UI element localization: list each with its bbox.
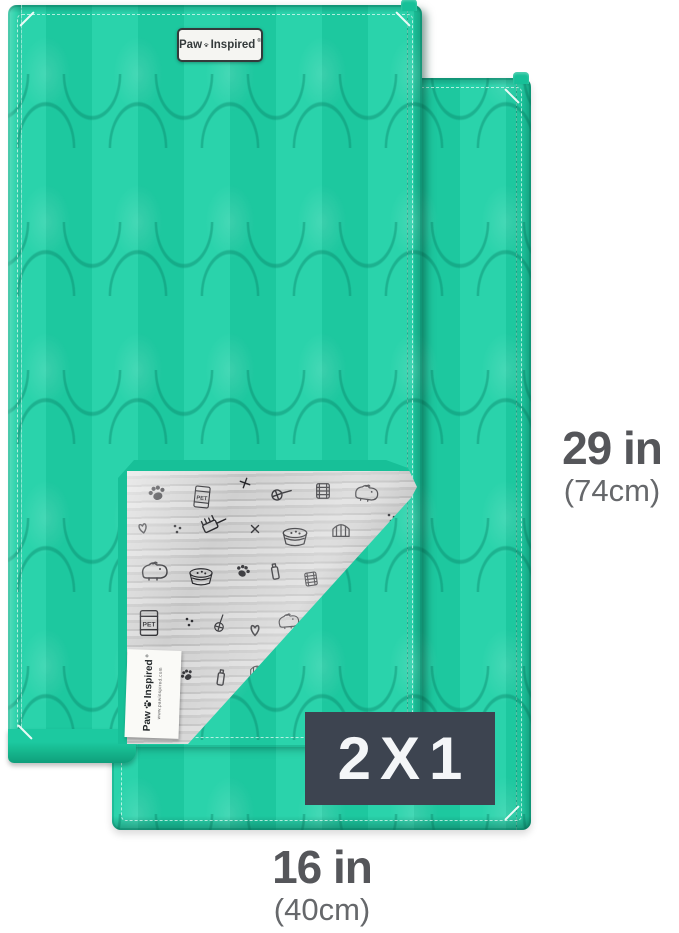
front-pad-top-binding (8, 5, 422, 13)
back-pad-side-gusset (516, 78, 531, 830)
brand-word-inspired: Inspired (211, 39, 256, 51)
height-metric: (74cm) (545, 474, 679, 507)
care-label-tag: Paw Inspired ® www.pawinspired.com (124, 649, 181, 739)
care-label-brand: Paw Inspired ® (141, 654, 155, 731)
care-label-url: www.pawinspired.com (156, 667, 163, 719)
registered-mark: ® (257, 38, 261, 44)
brand-word-paw: Paw (179, 39, 202, 51)
width-inches: 16 in (222, 843, 422, 893)
front-pad-side-gusset (8, 5, 22, 747)
back-pad-bottom-binding (112, 816, 531, 830)
paw-print-icon (143, 700, 151, 709)
height-inches: 29 in (545, 424, 679, 474)
paw-print-icon (204, 40, 209, 50)
width-metric: (40cm) (222, 893, 422, 926)
product-image: Paw Inspired ® (0, 0, 679, 933)
front-pad-seam-tab (401, 0, 417, 11)
height-dimension: 29 in (74cm) (545, 424, 679, 507)
width-dimension: 16 in (40cm) (222, 843, 422, 926)
back-pad-seam-tab (513, 72, 529, 84)
promo-badge-label: 2X1 (338, 724, 472, 793)
promo-badge: 2X1 (305, 712, 495, 805)
brand-logo-plate: Paw Inspired ® (177, 28, 263, 62)
front-pad-side-gusset (407, 5, 422, 747)
